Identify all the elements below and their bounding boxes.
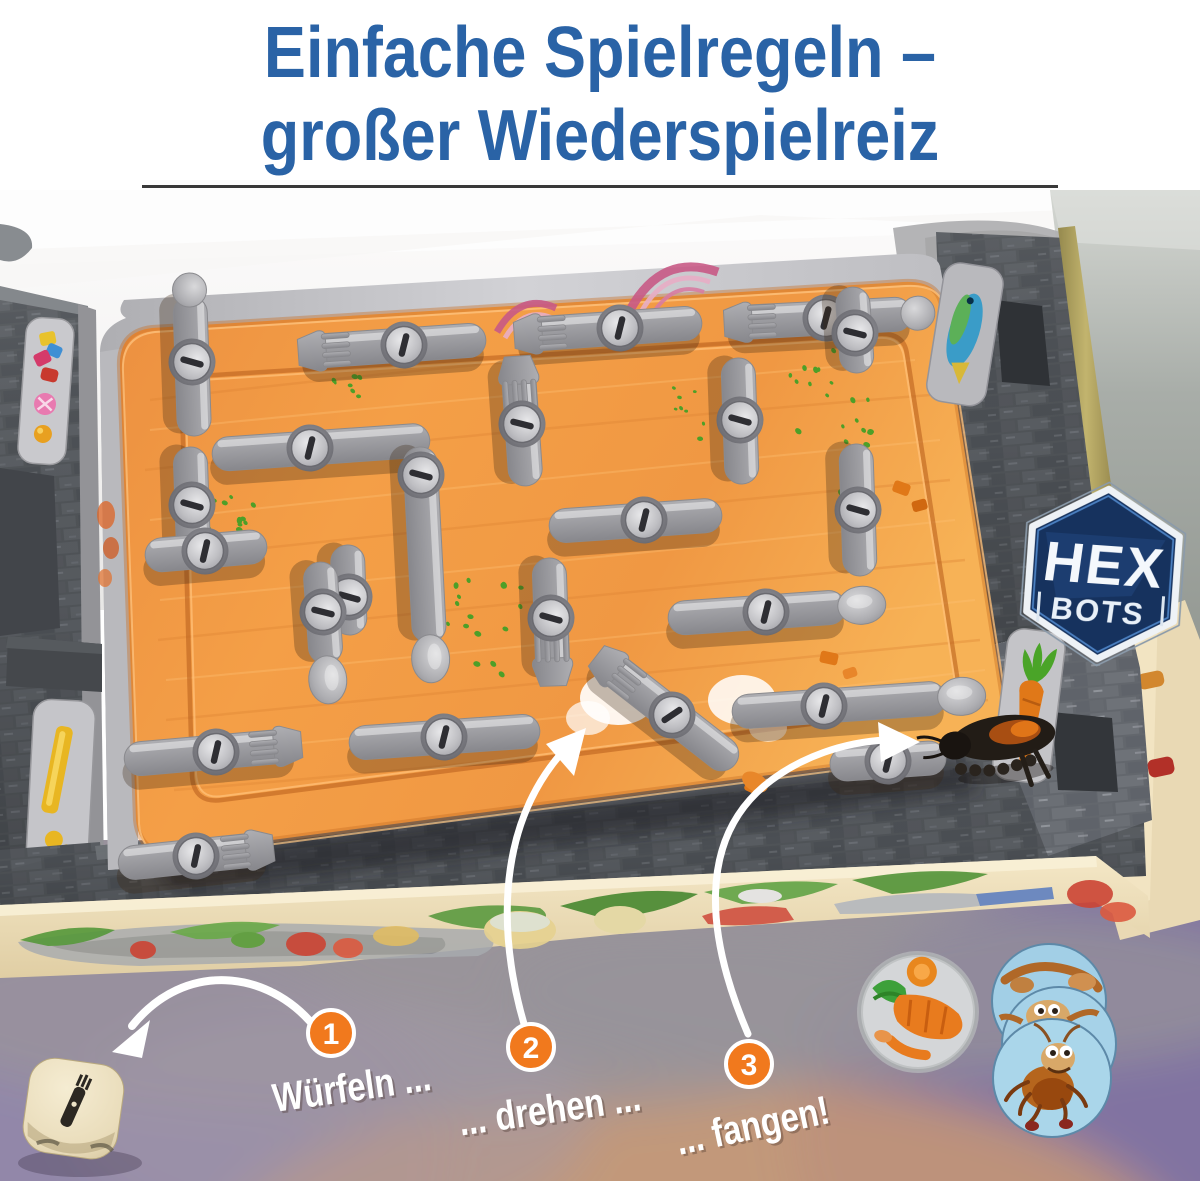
svg-text:HEX: HEX — [1040, 529, 1170, 600]
svg-text:2: 2 — [523, 1032, 540, 1065]
svg-text:Einfache Spielregeln –: Einfache Spielregeln – — [264, 13, 936, 93]
svg-text:1: 1 — [323, 1018, 340, 1051]
svg-text:BOTS: BOTS — [1048, 591, 1147, 632]
svg-text:großer Wiederspielreiz: großer Wiederspielreiz — [261, 96, 939, 176]
svg-text:3: 3 — [741, 1049, 758, 1082]
